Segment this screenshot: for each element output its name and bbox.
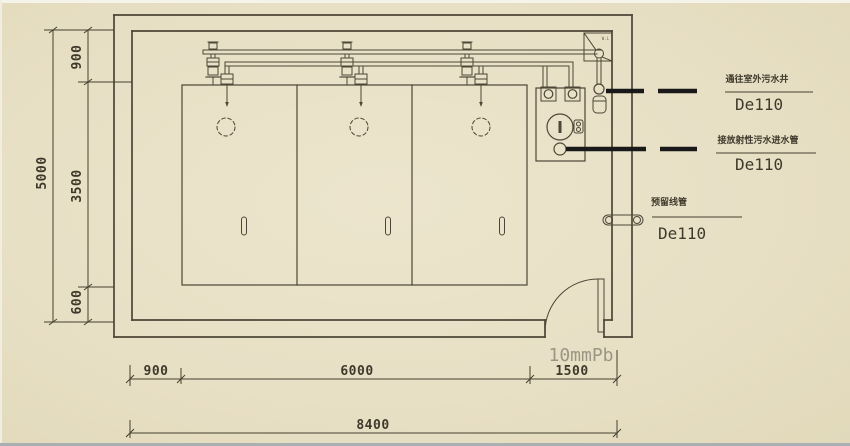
annotation-radioactive-inlet: 接放射性污水进水管 De110: [716, 134, 816, 174]
pipe-spec: De110: [735, 95, 783, 114]
dim-bottom-900: 900: [144, 364, 169, 379]
dimension-left: 900 3500 600 5000: [35, 27, 132, 325]
annotation-sewage-well: 通往室外污水井 De110: [725, 73, 813, 114]
tank1-opening: [217, 118, 235, 136]
tank1-inlet: [221, 66, 233, 107]
funnel-symbol: W.L: [584, 33, 612, 113]
annotation-text: 接放射性污水进水管: [717, 134, 798, 146]
dim-left-600: 600: [70, 290, 85, 315]
tank3-slot: [500, 217, 505, 235]
dim-left-total: 5000: [35, 156, 50, 189]
dim-left-900: 900: [70, 45, 85, 70]
tank3-valve: [460, 42, 474, 85]
door-leaf: [598, 279, 604, 332]
tank2-slot: [386, 217, 391, 235]
tank1-slot: [242, 217, 247, 235]
dim-bottom-total: 8400: [356, 418, 389, 433]
room-walls: [114, 15, 632, 337]
annotation-text: 通往室外污水井: [725, 73, 788, 85]
panel-outlet-valve: [554, 143, 566, 155]
tank3-opening: [472, 118, 490, 136]
screen-edge-left: [0, 0, 2, 446]
dim-bottom-6000: 6000: [340, 364, 373, 379]
tank2-opening: [350, 118, 368, 136]
tank2-valve: [340, 42, 354, 85]
panel-port-2: [568, 90, 577, 99]
dimension-bottom: 900 6000 1500 8400: [126, 350, 621, 438]
annotation-reserved-conduit: 预留线管 De110: [651, 196, 742, 243]
pipe-spec: De110: [658, 224, 706, 243]
panel-port-1: [544, 90, 553, 99]
tank2-inlet: [355, 66, 367, 107]
tank3-inlet: [475, 66, 487, 107]
dim-left-3500: 3500: [70, 169, 85, 202]
trap: [593, 96, 606, 113]
pipe-spec: De110: [735, 155, 783, 174]
dim-bottom-1500: 1500: [555, 364, 588, 379]
door-swing-arc: [545, 279, 598, 332]
drawing: 10mmPb: [0, 0, 850, 446]
outlet-valve: [594, 84, 604, 94]
door-shielding-label: 10mmPb: [548, 345, 613, 366]
tank1-valve: [206, 42, 220, 85]
tanks: [182, 85, 527, 285]
wall-sleeve: [603, 215, 643, 225]
screen-edge-top: [0, 0, 850, 3]
annotation-text: 预留线管: [651, 196, 687, 208]
cad-floor-plan: 10mmPb: [0, 0, 850, 446]
funnel-label: W.L: [602, 36, 610, 41]
